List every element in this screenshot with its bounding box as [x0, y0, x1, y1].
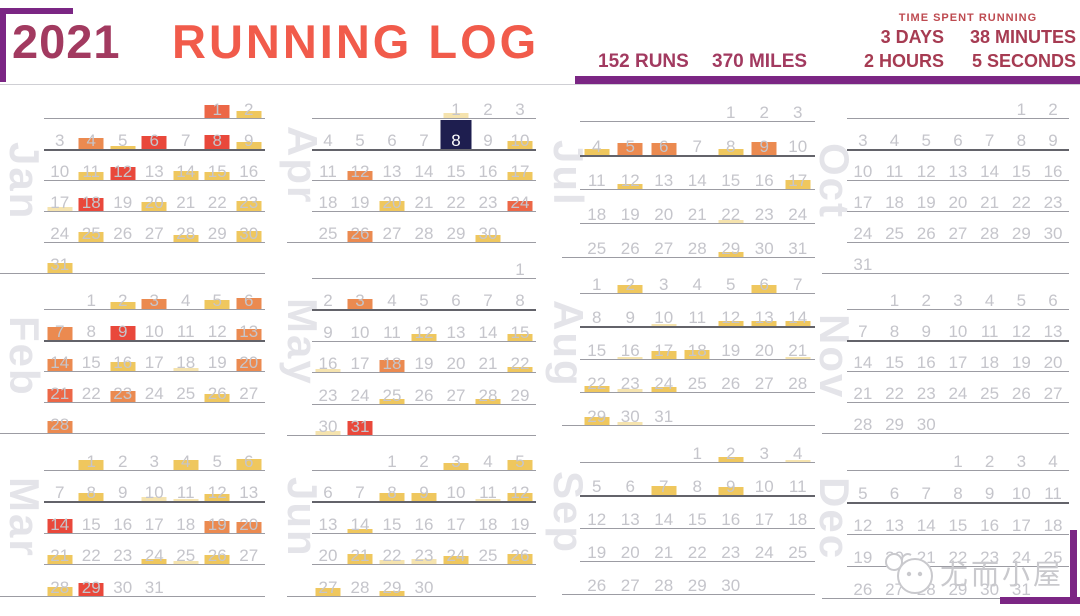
day-oct-30[interactable]: 30	[1037, 212, 1069, 243]
day-apr-14[interactable]: 14	[408, 150, 440, 181]
day-aug-4[interactable]: 4	[681, 261, 715, 294]
day-sep-10[interactable]: 10	[748, 463, 782, 496]
day-jan-10[interactable]: 10	[44, 150, 76, 181]
day-sep-30[interactable]: 30	[714, 562, 748, 595]
day-mar-2[interactable]: 2	[107, 439, 139, 471]
day-aug-29[interactable]: 29	[580, 393, 614, 426]
day-jun-1[interactable]: 1	[376, 439, 408, 471]
day-nov-21[interactable]: 21	[847, 372, 879, 403]
day-mar-26[interactable]: 26	[202, 534, 234, 566]
day-oct-15[interactable]: 15	[1006, 150, 1038, 181]
day-dec-8[interactable]: 8	[942, 471, 974, 503]
day-oct-24[interactable]: 24	[847, 212, 879, 243]
day-nov-2[interactable]: 2	[910, 279, 942, 310]
day-aug-16[interactable]: 16	[614, 327, 648, 360]
day-nov-17[interactable]: 17	[942, 341, 974, 372]
day-may-2[interactable]: 2	[312, 279, 344, 311]
day-apr-19[interactable]: 19	[344, 181, 376, 212]
day-may-17[interactable]: 17	[344, 342, 376, 374]
day-dec-5[interactable]: 5	[847, 471, 879, 503]
day-nov-15[interactable]: 15	[879, 341, 911, 372]
day-sep-14[interactable]: 14	[647, 496, 681, 529]
day-dec-9[interactable]: 9	[974, 471, 1006, 503]
day-oct-11[interactable]: 11	[879, 150, 911, 181]
day-may-9[interactable]: 9	[312, 310, 344, 342]
day-may-23[interactable]: 23	[312, 373, 344, 405]
day-dec-2[interactable]: 2	[974, 439, 1006, 471]
day-jun-28[interactable]: 28	[344, 565, 376, 597]
day-apr-27[interactable]: 27	[376, 212, 408, 243]
day-sep-12[interactable]: 12	[580, 496, 614, 529]
day-mar-6[interactable]: 6	[233, 439, 265, 471]
day-feb-10[interactable]: 10	[139, 310, 171, 341]
day-feb-12[interactable]: 12	[202, 310, 234, 341]
day-nov-4[interactable]: 4	[974, 279, 1006, 310]
day-nov-26[interactable]: 26	[1006, 372, 1038, 403]
day-may-15[interactable]: 15	[504, 310, 536, 342]
day-jul-19[interactable]: 19	[614, 190, 648, 224]
day-nov-5[interactable]: 5	[1006, 279, 1038, 310]
day-jul-8[interactable]: 8	[714, 122, 748, 156]
day-apr-3[interactable]: 3	[504, 88, 536, 119]
day-jun-21[interactable]: 21	[344, 534, 376, 566]
day-dec-19[interactable]: 19	[847, 535, 879, 567]
day-dec-6[interactable]: 6	[879, 471, 911, 503]
day-jan-16[interactable]: 16	[233, 150, 265, 181]
day-aug-27[interactable]: 27	[748, 360, 782, 393]
day-oct-6[interactable]: 6	[942, 119, 974, 150]
day-jan-31[interactable]: 31	[44, 243, 76, 274]
day-apr-2[interactable]: 2	[472, 88, 504, 119]
day-jul-7[interactable]: 7	[681, 122, 715, 156]
day-oct-29[interactable]: 29	[1006, 212, 1038, 243]
day-oct-27[interactable]: 27	[942, 212, 974, 243]
day-may-28[interactable]: 28	[472, 373, 504, 405]
day-dec-7[interactable]: 7	[910, 471, 942, 503]
day-feb-20[interactable]: 20	[233, 341, 265, 372]
day-jun-27[interactable]: 27	[312, 565, 344, 597]
day-aug-6[interactable]: 6	[748, 261, 782, 294]
day-nov-1[interactable]: 1	[879, 279, 911, 310]
day-jun-16[interactable]: 16	[408, 502, 440, 534]
day-oct-21[interactable]: 21	[974, 181, 1006, 212]
day-jul-13[interactable]: 13	[647, 156, 681, 190]
day-feb-9[interactable]: 9	[107, 310, 139, 341]
day-may-19[interactable]: 19	[408, 342, 440, 374]
day-sep-16[interactable]: 16	[714, 496, 748, 529]
day-jun-22[interactable]: 22	[376, 534, 408, 566]
day-sep-28[interactable]: 28	[647, 562, 681, 595]
day-feb-4[interactable]: 4	[170, 279, 202, 310]
day-aug-5[interactable]: 5	[714, 261, 748, 294]
day-jan-9[interactable]: 9	[233, 119, 265, 150]
day-mar-21[interactable]: 21	[44, 534, 76, 566]
day-apr-23[interactable]: 23	[472, 181, 504, 212]
day-sep-29[interactable]: 29	[681, 562, 715, 595]
day-nov-29[interactable]: 29	[879, 403, 911, 434]
day-jan-12[interactable]: 12	[107, 150, 139, 181]
day-jan-6[interactable]: 6	[139, 119, 171, 150]
day-sep-17[interactable]: 17	[748, 496, 782, 529]
day-apr-24[interactable]: 24	[504, 181, 536, 212]
day-aug-23[interactable]: 23	[614, 360, 648, 393]
day-oct-20[interactable]: 20	[942, 181, 974, 212]
day-aug-14[interactable]: 14	[781, 294, 815, 327]
day-mar-13[interactable]: 13	[233, 471, 265, 503]
day-sep-13[interactable]: 13	[614, 496, 648, 529]
day-mar-24[interactable]: 24	[139, 534, 171, 566]
day-jul-30[interactable]: 30	[748, 224, 782, 258]
day-mar-9[interactable]: 9	[107, 471, 139, 503]
day-apr-17[interactable]: 17	[504, 150, 536, 181]
day-dec-1[interactable]: 1	[942, 439, 974, 471]
day-sep-9[interactable]: 9	[714, 463, 748, 496]
day-may-24[interactable]: 24	[344, 373, 376, 405]
day-apr-9[interactable]: 9	[472, 119, 504, 150]
day-apr-30[interactable]: 30	[472, 212, 504, 243]
day-dec-17[interactable]: 17	[1006, 503, 1038, 535]
day-oct-23[interactable]: 23	[1037, 181, 1069, 212]
day-mar-4[interactable]: 4	[170, 439, 202, 471]
day-sep-7[interactable]: 7	[647, 463, 681, 496]
day-oct-10[interactable]: 10	[847, 150, 879, 181]
day-aug-2[interactable]: 2	[614, 261, 648, 294]
day-apr-16[interactable]: 16	[472, 150, 504, 181]
day-apr-4[interactable]: 4	[312, 119, 344, 150]
day-apr-13[interactable]: 13	[376, 150, 408, 181]
day-mar-3[interactable]: 3	[139, 439, 171, 471]
day-jan-4[interactable]: 4	[76, 119, 108, 150]
day-dec-26[interactable]: 26	[847, 567, 879, 599]
day-apr-22[interactable]: 22	[440, 181, 472, 212]
day-may-21[interactable]: 21	[472, 342, 504, 374]
day-apr-26[interactable]: 26	[344, 212, 376, 243]
day-oct-31[interactable]: 31	[847, 243, 879, 274]
day-nov-10[interactable]: 10	[942, 310, 974, 341]
day-dec-3[interactable]: 3	[1006, 439, 1038, 471]
day-jun-17[interactable]: 17	[440, 502, 472, 534]
day-jan-30[interactable]: 30	[233, 212, 265, 243]
day-apr-7[interactable]: 7	[408, 119, 440, 150]
day-jun-15[interactable]: 15	[376, 502, 408, 534]
day-jun-20[interactable]: 20	[312, 534, 344, 566]
day-oct-25[interactable]: 25	[879, 212, 911, 243]
day-jan-20[interactable]: 20	[139, 181, 171, 212]
day-mar-25[interactable]: 25	[170, 534, 202, 566]
day-jul-4[interactable]: 4	[580, 122, 614, 156]
day-jan-11[interactable]: 11	[76, 150, 108, 181]
day-oct-4[interactable]: 4	[879, 119, 911, 150]
day-mar-10[interactable]: 10	[139, 471, 171, 503]
day-feb-27[interactable]: 27	[233, 372, 265, 403]
day-apr-1[interactable]: 1	[440, 88, 472, 119]
day-may-18[interactable]: 18	[376, 342, 408, 374]
day-oct-7[interactable]: 7	[974, 119, 1006, 150]
day-sep-2[interactable]: 2	[714, 430, 748, 463]
day-jan-5[interactable]: 5	[107, 119, 139, 150]
day-jan-7[interactable]: 7	[170, 119, 202, 150]
day-oct-28[interactable]: 28	[974, 212, 1006, 243]
day-nov-3[interactable]: 3	[942, 279, 974, 310]
day-feb-24[interactable]: 24	[139, 372, 171, 403]
day-jul-18[interactable]: 18	[580, 190, 614, 224]
day-may-3[interactable]: 3	[344, 279, 376, 311]
day-mar-5[interactable]: 5	[202, 439, 234, 471]
day-jul-23[interactable]: 23	[748, 190, 782, 224]
day-apr-21[interactable]: 21	[408, 181, 440, 212]
day-nov-27[interactable]: 27	[1037, 372, 1069, 403]
day-nov-12[interactable]: 12	[1006, 310, 1038, 341]
day-nov-6[interactable]: 6	[1037, 279, 1069, 310]
day-jul-15[interactable]: 15	[714, 156, 748, 190]
day-nov-16[interactable]: 16	[910, 341, 942, 372]
day-mar-28[interactable]: 28	[44, 565, 76, 597]
day-jun-2[interactable]: 2	[408, 439, 440, 471]
day-jan-27[interactable]: 27	[139, 212, 171, 243]
day-aug-26[interactable]: 26	[714, 360, 748, 393]
day-may-12[interactable]: 12	[408, 310, 440, 342]
day-jun-25[interactable]: 25	[472, 534, 504, 566]
day-may-30[interactable]: 30	[312, 405, 344, 437]
day-oct-18[interactable]: 18	[879, 181, 911, 212]
day-apr-11[interactable]: 11	[312, 150, 344, 181]
day-jun-11[interactable]: 11	[472, 471, 504, 503]
day-feb-18[interactable]: 18	[170, 341, 202, 372]
day-aug-20[interactable]: 20	[748, 327, 782, 360]
day-jun-8[interactable]: 8	[376, 471, 408, 503]
day-nov-11[interactable]: 11	[974, 310, 1006, 341]
day-aug-10[interactable]: 10	[647, 294, 681, 327]
day-may-7[interactable]: 7	[472, 279, 504, 311]
day-may-20[interactable]: 20	[440, 342, 472, 374]
day-jan-19[interactable]: 19	[107, 181, 139, 212]
day-apr-5[interactable]: 5	[344, 119, 376, 150]
day-feb-5[interactable]: 5	[202, 279, 234, 310]
day-sep-4[interactable]: 4	[781, 430, 815, 463]
day-apr-8[interactable]: 8	[440, 119, 472, 150]
day-oct-3[interactable]: 3	[847, 119, 879, 150]
day-oct-1[interactable]: 1	[1006, 88, 1038, 119]
day-jun-30[interactable]: 30	[408, 565, 440, 597]
day-may-4[interactable]: 4	[376, 279, 408, 311]
day-jul-3[interactable]: 3	[781, 88, 815, 122]
day-feb-22[interactable]: 22	[76, 372, 108, 403]
day-sep-22[interactable]: 22	[681, 529, 715, 562]
day-dec-13[interactable]: 13	[879, 503, 911, 535]
day-aug-17[interactable]: 17	[647, 327, 681, 360]
day-feb-26[interactable]: 26	[202, 372, 234, 403]
day-may-31[interactable]: 31	[344, 405, 376, 437]
day-jan-29[interactable]: 29	[202, 212, 234, 243]
day-feb-7[interactable]: 7	[44, 310, 76, 341]
day-jun-13[interactable]: 13	[312, 502, 344, 534]
day-sep-8[interactable]: 8	[681, 463, 715, 496]
day-aug-9[interactable]: 9	[614, 294, 648, 327]
day-oct-13[interactable]: 13	[942, 150, 974, 181]
day-jan-8[interactable]: 8	[202, 119, 234, 150]
day-mar-20[interactable]: 20	[233, 502, 265, 534]
day-sep-21[interactable]: 21	[647, 529, 681, 562]
day-jan-15[interactable]: 15	[202, 150, 234, 181]
day-feb-1[interactable]: 1	[76, 279, 108, 310]
day-jan-23[interactable]: 23	[233, 181, 265, 212]
day-jan-21[interactable]: 21	[170, 181, 202, 212]
day-aug-8[interactable]: 8	[580, 294, 614, 327]
day-nov-13[interactable]: 13	[1037, 310, 1069, 341]
day-feb-11[interactable]: 11	[170, 310, 202, 341]
day-apr-29[interactable]: 29	[440, 212, 472, 243]
day-may-29[interactable]: 29	[504, 373, 536, 405]
day-may-26[interactable]: 26	[408, 373, 440, 405]
day-oct-12[interactable]: 12	[910, 150, 942, 181]
day-sep-1[interactable]: 1	[681, 430, 715, 463]
day-jul-6[interactable]: 6	[647, 122, 681, 156]
day-aug-25[interactable]: 25	[681, 360, 715, 393]
day-sep-3[interactable]: 3	[748, 430, 782, 463]
day-apr-12[interactable]: 12	[344, 150, 376, 181]
day-jan-2[interactable]: 2	[233, 88, 265, 119]
day-mar-7[interactable]: 7	[44, 471, 76, 503]
day-jul-27[interactable]: 27	[647, 224, 681, 258]
day-sep-5[interactable]: 5	[580, 463, 614, 496]
day-mar-31[interactable]: 31	[139, 565, 171, 597]
day-oct-2[interactable]: 2	[1037, 88, 1069, 119]
day-jan-1[interactable]: 1	[202, 88, 234, 119]
day-nov-25[interactable]: 25	[974, 372, 1006, 403]
day-jun-9[interactable]: 9	[408, 471, 440, 503]
day-aug-15[interactable]: 15	[580, 327, 614, 360]
day-oct-17[interactable]: 17	[847, 181, 879, 212]
day-jan-17[interactable]: 17	[44, 181, 76, 212]
day-may-14[interactable]: 14	[472, 310, 504, 342]
day-jul-20[interactable]: 20	[647, 190, 681, 224]
day-jan-3[interactable]: 3	[44, 119, 76, 150]
day-oct-14[interactable]: 14	[974, 150, 1006, 181]
day-sep-27[interactable]: 27	[614, 562, 648, 595]
day-jan-28[interactable]: 28	[170, 212, 202, 243]
day-nov-30[interactable]: 30	[910, 403, 942, 434]
day-mar-8[interactable]: 8	[76, 471, 108, 503]
day-apr-15[interactable]: 15	[440, 150, 472, 181]
day-jan-22[interactable]: 22	[202, 181, 234, 212]
day-apr-10[interactable]: 10	[504, 119, 536, 150]
day-jun-24[interactable]: 24	[440, 534, 472, 566]
day-aug-1[interactable]: 1	[580, 261, 614, 294]
day-nov-14[interactable]: 14	[847, 341, 879, 372]
day-jun-5[interactable]: 5	[504, 439, 536, 471]
day-jul-1[interactable]: 1	[714, 88, 748, 122]
day-feb-2[interactable]: 2	[107, 279, 139, 310]
day-jan-18[interactable]: 18	[76, 181, 108, 212]
day-aug-7[interactable]: 7	[781, 261, 815, 294]
day-sep-6[interactable]: 6	[614, 463, 648, 496]
day-may-13[interactable]: 13	[440, 310, 472, 342]
day-nov-8[interactable]: 8	[879, 310, 911, 341]
day-jun-26[interactable]: 26	[504, 534, 536, 566]
day-feb-25[interactable]: 25	[170, 372, 202, 403]
day-nov-9[interactable]: 9	[910, 310, 942, 341]
day-nov-18[interactable]: 18	[974, 341, 1006, 372]
day-aug-13[interactable]: 13	[748, 294, 782, 327]
day-aug-24[interactable]: 24	[647, 360, 681, 393]
day-jun-18[interactable]: 18	[472, 502, 504, 534]
day-aug-3[interactable]: 3	[647, 261, 681, 294]
day-nov-19[interactable]: 19	[1006, 341, 1038, 372]
day-jul-14[interactable]: 14	[681, 156, 715, 190]
day-jul-10[interactable]: 10	[781, 122, 815, 156]
day-jul-5[interactable]: 5	[614, 122, 648, 156]
day-jul-21[interactable]: 21	[681, 190, 715, 224]
day-nov-28[interactable]: 28	[847, 403, 879, 434]
day-jul-12[interactable]: 12	[614, 156, 648, 190]
day-jul-2[interactable]: 2	[748, 88, 782, 122]
day-oct-8[interactable]: 8	[1006, 119, 1038, 150]
day-aug-19[interactable]: 19	[714, 327, 748, 360]
day-jan-24[interactable]: 24	[44, 212, 76, 243]
day-may-8[interactable]: 8	[504, 279, 536, 311]
day-mar-29[interactable]: 29	[76, 565, 108, 597]
day-sep-19[interactable]: 19	[580, 529, 614, 562]
day-mar-16[interactable]: 16	[107, 502, 139, 534]
day-jun-4[interactable]: 4	[472, 439, 504, 471]
day-jul-22[interactable]: 22	[714, 190, 748, 224]
day-mar-19[interactable]: 19	[202, 502, 234, 534]
day-feb-3[interactable]: 3	[139, 279, 171, 310]
day-jul-16[interactable]: 16	[748, 156, 782, 190]
day-sep-26[interactable]: 26	[580, 562, 614, 595]
day-feb-28[interactable]: 28	[44, 403, 76, 434]
day-jul-26[interactable]: 26	[614, 224, 648, 258]
day-may-16[interactable]: 16	[312, 342, 344, 374]
day-jun-12[interactable]: 12	[504, 471, 536, 503]
day-jun-29[interactable]: 29	[376, 565, 408, 597]
day-sep-24[interactable]: 24	[748, 529, 782, 562]
day-dec-16[interactable]: 16	[974, 503, 1006, 535]
day-jul-31[interactable]: 31	[781, 224, 815, 258]
day-aug-11[interactable]: 11	[681, 294, 715, 327]
day-jul-25[interactable]: 25	[580, 224, 614, 258]
day-sep-15[interactable]: 15	[681, 496, 715, 529]
day-apr-28[interactable]: 28	[408, 212, 440, 243]
day-sep-20[interactable]: 20	[614, 529, 648, 562]
day-aug-12[interactable]: 12	[714, 294, 748, 327]
day-jun-14[interactable]: 14	[344, 502, 376, 534]
day-jun-23[interactable]: 23	[408, 534, 440, 566]
day-may-22[interactable]: 22	[504, 342, 536, 374]
day-jun-6[interactable]: 6	[312, 471, 344, 503]
day-mar-18[interactable]: 18	[170, 502, 202, 534]
day-oct-22[interactable]: 22	[1006, 181, 1038, 212]
day-may-27[interactable]: 27	[440, 373, 472, 405]
day-feb-17[interactable]: 17	[139, 341, 171, 372]
day-may-5[interactable]: 5	[408, 279, 440, 311]
day-may-6[interactable]: 6	[440, 279, 472, 311]
day-nov-24[interactable]: 24	[942, 372, 974, 403]
day-aug-30[interactable]: 30	[614, 393, 648, 426]
day-nov-23[interactable]: 23	[910, 372, 942, 403]
day-dec-4[interactable]: 4	[1037, 439, 1069, 471]
day-oct-16[interactable]: 16	[1037, 150, 1069, 181]
day-mar-17[interactable]: 17	[139, 502, 171, 534]
day-feb-14[interactable]: 14	[44, 341, 76, 372]
day-feb-15[interactable]: 15	[76, 341, 108, 372]
day-jun-10[interactable]: 10	[440, 471, 472, 503]
day-feb-19[interactable]: 19	[202, 341, 234, 372]
day-sep-23[interactable]: 23	[714, 529, 748, 562]
day-may-1[interactable]: 1	[504, 247, 536, 279]
day-mar-23[interactable]: 23	[107, 534, 139, 566]
day-mar-30[interactable]: 30	[107, 565, 139, 597]
